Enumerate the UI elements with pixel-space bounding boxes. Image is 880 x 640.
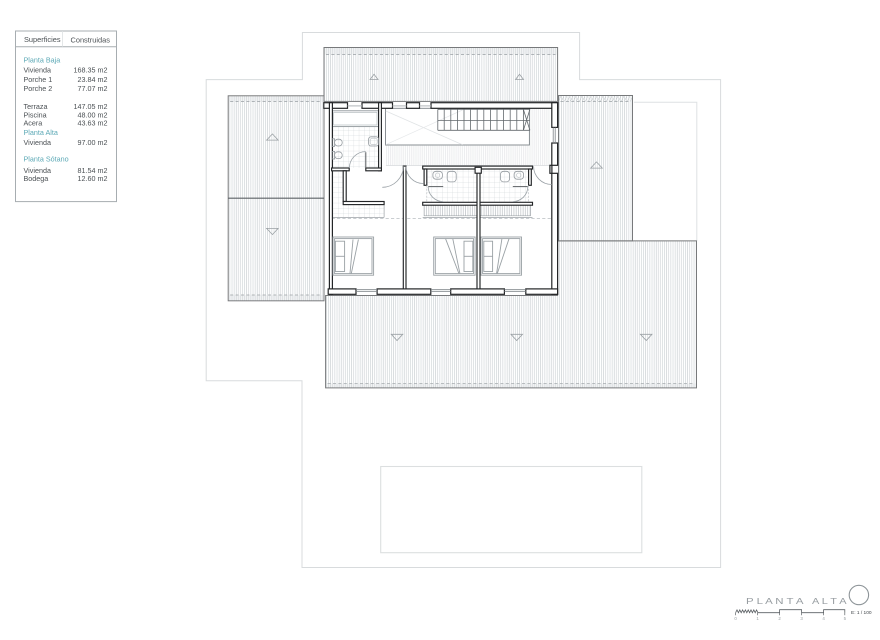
svg-text:97.00 m2: 97.00 m2 [78,138,108,147]
svg-text:Planta Sótano: Planta Sótano [24,155,69,164]
svg-text:Planta Baja: Planta Baja [24,56,61,65]
svg-text:Porche 2: Porche 2 [24,84,53,93]
svg-text:23.84 m2: 23.84 m2 [78,75,108,84]
svg-text:77.07 m2: 77.07 m2 [78,84,108,93]
svg-text:43.63 m2: 43.63 m2 [78,119,108,128]
svg-text:A L T A: A L T A [812,596,847,606]
svg-text:Bodega: Bodega [24,174,49,183]
svg-text:12.60 m2: 12.60 m2 [78,174,108,183]
svg-text:Planta Alta: Planta Alta [24,128,58,137]
svg-text:Vivienda: Vivienda [24,66,51,75]
svg-text:Construidas: Construidas [71,36,111,45]
svg-text:Superficies: Superficies [24,35,61,44]
svg-text:P L A N T A: P L A N T A [746,596,804,606]
svg-text:Porche 1: Porche 1 [24,75,53,84]
svg-text:168.35 m2: 168.35 m2 [74,66,108,75]
svg-text:Vivienda: Vivienda [24,138,51,147]
svg-text:E: 1 / 100: E: 1 / 100 [851,610,872,616]
svg-text:Acera: Acera [24,119,43,128]
